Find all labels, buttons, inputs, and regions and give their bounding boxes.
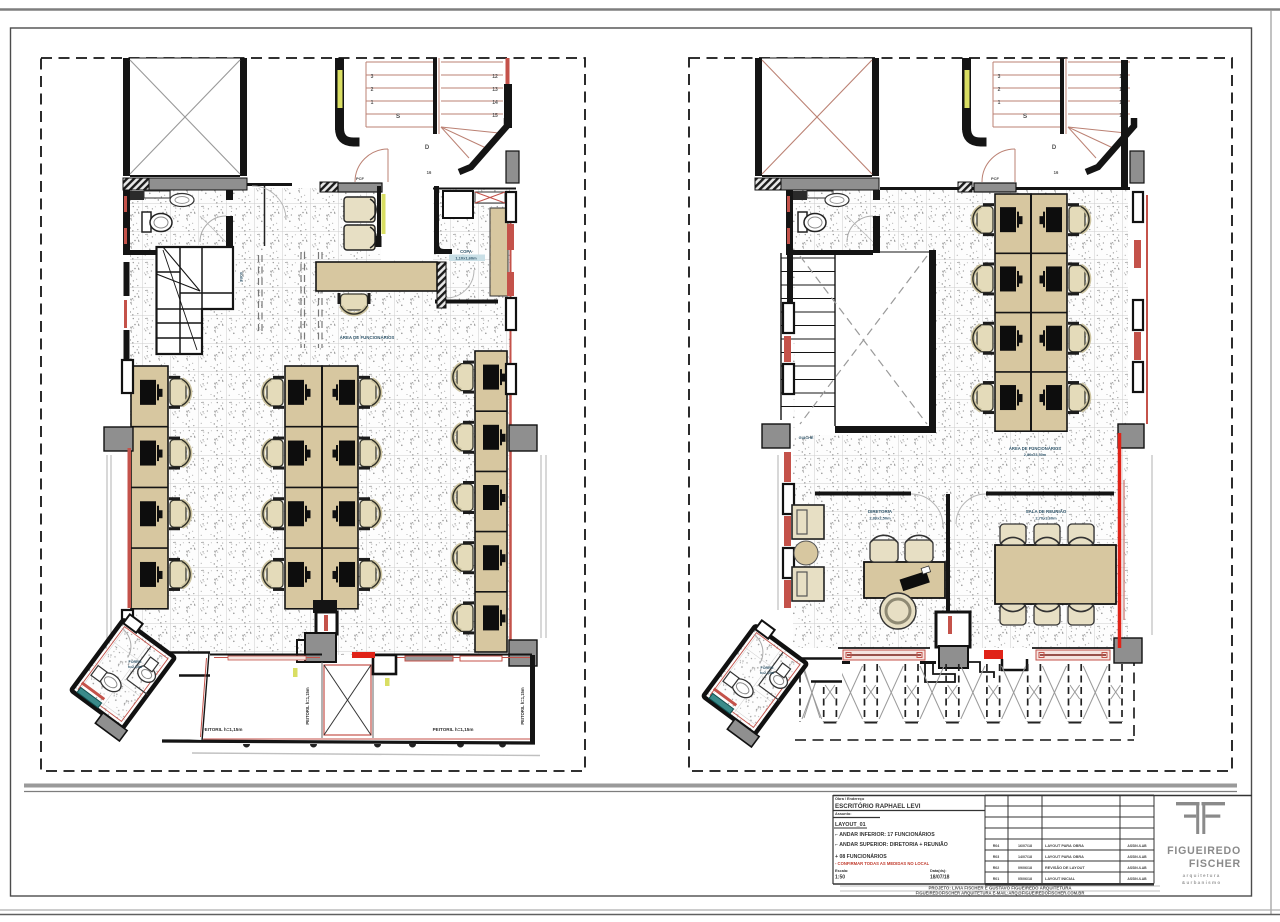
svg-text:FISCHER: FISCHER [1189,858,1241,870]
svg-text:PEITORIL h=1,15m: PEITORIL h=1,15m [520,687,525,724]
svg-text:1: 1 [998,100,1001,106]
svg-text:FORRO: FORRO [129,660,142,664]
svg-text:1:50: 1:50 [835,875,845,881]
svg-text:FIGUEIREDO: FIGUEIREDO [1167,845,1241,857]
svg-text:⌐ ANDAR SUPERIOR: DIRETORIA +: ⌐ ANDAR SUPERIOR: DIRETORIA + REUNIÃO [835,841,948,848]
svg-text:2: 2 [371,87,374,93]
svg-text:ASSIN./LAB: ASSIN./LAB [1127,877,1147,881]
svg-text:& u r b a n i s m o: & u r b a n i s m o [1182,880,1220,885]
svg-text:ESCRITÓRIO RAPHAEL LEVI: ESCRITÓRIO RAPHAEL LEVI [835,802,921,810]
svg-text:R03: R03 [993,855,1000,859]
svg-text:PCF: PCF [991,176,1000,181]
svg-text:2,80x2,50m: 2,80x2,50m [869,516,891,521]
svg-text:D: D [425,145,430,151]
svg-text:3: 3 [371,74,374,80]
svg-text:SOBE: SOBE [239,272,243,283]
svg-text:2: 2 [998,87,1001,93]
svg-text:PCF: PCF [356,176,365,181]
svg-text:15: 15 [492,113,498,119]
svg-text:PEITORIL h=1,15m: PEITORIL h=1,15m [202,727,243,732]
svg-text:LAYOUT INICIAL: LAYOUT INICIAL [1045,877,1076,881]
svg-text:1,10x1,60m: 1,10x1,60m [455,256,477,261]
svg-text:h=2,10m: h=2,10m [760,671,774,675]
svg-text:Assunto:: Assunto: [835,812,851,816]
svg-text:- CONFIRMAR TODAS AS MEDIDAS N: - CONFIRMAR TODAS AS MEDIDAS NO LOCAL [835,861,930,866]
svg-text:COPA: COPA [460,249,472,254]
svg-text:2,70x3,60m: 2,70x3,60m [1035,516,1057,521]
svg-text:S: S [1023,113,1028,120]
svg-text:⌐ ANDAR INFERIOR: 17 FUNCIONÁR: ⌐ ANDAR INFERIOR: 17 FUNCIONÁRIOS [835,831,935,838]
svg-text:3: 3 [998,74,1001,80]
svg-text:14: 14 [492,100,498,106]
svg-text:09/06/18: 09/06/18 [1018,866,1032,870]
svg-text:R04: R04 [993,844,1000,848]
svg-text:14/07/18: 14/07/18 [1018,855,1032,859]
svg-text:16: 16 [1054,170,1059,175]
svg-text:ASSIN./LAB: ASSIN./LAB [1127,844,1147,848]
svg-text:R02: R02 [993,866,1000,870]
svg-text:SALA DE REUNIÃO: SALA DE REUNIÃO [1026,509,1067,514]
svg-text:ÁREA DE FUNCIONÁRIOS: ÁREA DE FUNCIONÁRIOS [340,335,395,340]
svg-text:LAYOUT PARA OBRA: LAYOUT PARA OBRA [1045,844,1084,848]
svg-text:h=2,10m: h=2,10m [128,665,142,669]
svg-text:FORRO: FORRO [761,666,774,670]
svg-text:PEITORIL h=1,15m: PEITORIL h=1,15m [433,727,474,732]
svg-text:16: 16 [427,170,432,175]
svg-text:13: 13 [492,87,498,93]
svg-text:LAYOUT_01: LAYOUT_01 [835,822,866,828]
svg-text:R01: R01 [993,877,1000,881]
svg-text:LAYOUT PARA OBRA: LAYOUT PARA OBRA [1045,855,1084,859]
svg-text:D: D [1052,145,1057,151]
svg-text:DIRETORIA: DIRETORIA [868,509,893,514]
svg-text:a r q u i t e t u r a: a r q u i t e t u r a [1183,873,1220,878]
svg-text:12: 12 [492,74,498,80]
svg-text:ASSIN./LAB: ASSIN./LAB [1127,855,1147,859]
svg-text:Escala:: Escala: [835,869,848,873]
svg-text:ASSIN./LAB: ASSIN./LAB [1127,866,1147,870]
svg-text:REVISÃO DE LAYOUT: REVISÃO DE LAYOUT [1045,865,1085,870]
svg-text:Data(ds):: Data(ds): [930,869,946,873]
svg-text:1: 1 [371,100,374,106]
svg-text:S: S [396,113,401,120]
svg-text:PEITORIL h=1,15m: PEITORIL h=1,15m [305,687,310,724]
svg-text:16/07/18: 16/07/18 [1018,844,1032,848]
svg-text:+ 08 FUNCIONÁRIOS: + 08 FUNCIONÁRIOS [835,853,887,860]
svg-text:Obra / Endereço: Obra / Endereço [835,797,865,801]
svg-text:2,80x23,50m: 2,80x23,50m [1024,453,1047,457]
svg-text:18/07/18: 18/07/18 [930,875,950,881]
svg-text:ÁREA DE FUNCIONÁRIOS: ÁREA DE FUNCIONÁRIOS [1009,446,1061,451]
svg-text:GUICHÊ: GUICHÊ [799,435,814,440]
svg-text:05/06/18: 05/06/18 [1018,877,1032,881]
